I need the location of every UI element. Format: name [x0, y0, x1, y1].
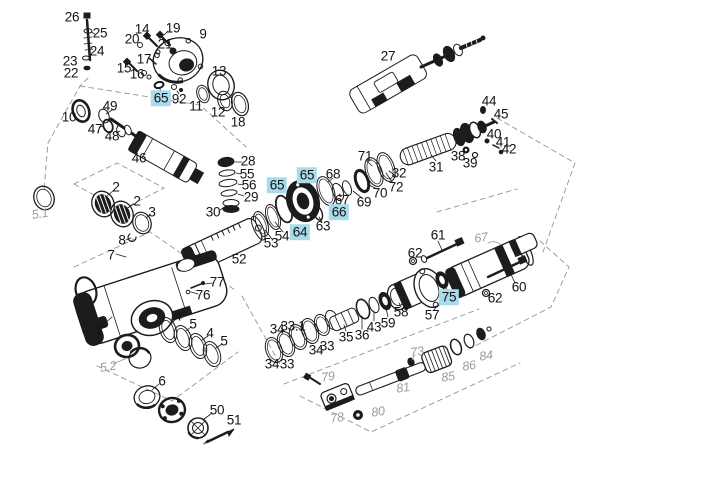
part-label-92[interactable]: 92: [171, 92, 187, 106]
part-label-21[interactable]: 21: [157, 37, 173, 51]
part-label-12[interactable]: 12: [210, 105, 226, 119]
part-label-18[interactable]: 18: [230, 115, 246, 129]
part-label-76[interactable]: 76: [195, 288, 211, 302]
part-label-59[interactable]: 59: [380, 316, 396, 330]
part-label-86: 86: [460, 359, 477, 374]
part-label-5[interactable]: 5: [219, 334, 228, 348]
part-label-34[interactable]: 34: [264, 357, 280, 371]
part-label-6[interactable]: 6: [157, 374, 166, 388]
part-label-24[interactable]: 24: [89, 44, 105, 58]
part-label-78: 78: [328, 411, 345, 426]
part-label-53[interactable]: 53: [263, 236, 279, 250]
part-label-2[interactable]: 2: [111, 180, 120, 194]
part-label-17[interactable]: 17: [136, 52, 152, 66]
part-label-4[interactable]: 4: [173, 309, 182, 323]
part-label-73: 73: [408, 345, 425, 360]
part-label-70[interactable]: 70: [372, 186, 388, 200]
part-label-69[interactable]: 69: [356, 195, 372, 209]
part-label-16[interactable]: 16: [129, 67, 145, 81]
part-label-62[interactable]: 62: [407, 246, 423, 260]
part-label-47[interactable]: 47: [87, 122, 103, 136]
part-label-1[interactable]: 1: [94, 322, 103, 336]
part-label-4[interactable]: 4: [205, 326, 214, 340]
part-label-25[interactable]: 25: [92, 26, 108, 40]
part-label-29[interactable]: 29: [243, 190, 259, 204]
part-label-9[interactable]: 9: [198, 27, 207, 41]
part-label-52[interactable]: 52: [231, 252, 247, 266]
part-label-11[interactable]: 11: [188, 99, 203, 113]
part-label-33.1[interactable]: 33.1: [279, 319, 306, 333]
part-label-60[interactable]: 60: [511, 280, 527, 294]
part-label-13[interactable]: 13: [211, 64, 227, 78]
part-label-7[interactable]: 7: [106, 248, 115, 262]
part-label-50[interactable]: 50: [209, 403, 225, 417]
part-label-79: 79: [319, 370, 336, 385]
part-label-81: 81: [394, 381, 411, 396]
part-label-36[interactable]: 36: [354, 328, 370, 342]
part-label-19[interactable]: 19: [165, 21, 181, 35]
part-label-80: 80: [369, 405, 386, 420]
part-label-72[interactable]: 72: [388, 180, 404, 194]
part-label-33[interactable]: 33: [279, 357, 295, 371]
part-label-61[interactable]: 61: [430, 228, 446, 242]
part-label-5.1: 5.1: [30, 206, 50, 221]
part-label-10[interactable]: 10: [61, 110, 77, 124]
part-label-57[interactable]: 57: [424, 308, 440, 322]
part-label-30[interactable]: 30: [205, 205, 221, 219]
part-label-31[interactable]: 31: [428, 160, 444, 174]
part-label-39[interactable]: 39: [462, 156, 478, 170]
part-label-64[interactable]: 64: [290, 224, 310, 240]
part-label-3[interactable]: 3: [147, 205, 156, 219]
part-label-71[interactable]: 71: [357, 149, 373, 163]
exploded-parts-diagram: 2625242322142019219171516136592111218104…: [0, 0, 720, 501]
part-label-65[interactable]: 65: [151, 90, 171, 106]
part-label-63[interactable]: 63: [315, 219, 331, 233]
part-label-49[interactable]: 49: [102, 99, 118, 113]
part-label-27[interactable]: 27: [380, 49, 396, 63]
part-label-8[interactable]: 8: [117, 233, 126, 247]
part-label-34[interactable]: 34: [308, 343, 324, 357]
part-label-46[interactable]: 46: [131, 151, 147, 165]
part-labels-layer: 2625242322142019219171516136592111218104…: [0, 0, 720, 501]
part-label-77[interactable]: 77: [209, 275, 225, 289]
part-label-68[interactable]: 68: [325, 167, 341, 181]
part-label-5.2: 5.2: [98, 359, 118, 374]
part-label-5[interactable]: 5: [188, 317, 197, 331]
part-label-65[interactable]: 65: [297, 167, 317, 183]
part-label-51[interactable]: 51: [226, 413, 242, 427]
part-label-84: 84: [477, 349, 494, 364]
part-label-65[interactable]: 65: [267, 177, 287, 193]
part-label-32[interactable]: 32: [391, 166, 407, 180]
part-label-42[interactable]: 42: [501, 142, 517, 156]
part-label-62[interactable]: 62: [487, 291, 503, 305]
part-label-85: 85: [439, 370, 456, 385]
part-label-26[interactable]: 26: [64, 10, 80, 24]
part-label-67: 67: [472, 231, 489, 246]
part-label-35[interactable]: 35: [338, 330, 354, 344]
part-label-2[interactable]: 2: [132, 194, 141, 208]
part-label-22[interactable]: 22: [63, 66, 79, 80]
part-label-66[interactable]: 66: [329, 204, 349, 220]
part-label-48[interactable]: 48: [104, 129, 120, 143]
part-label-20[interactable]: 20: [124, 32, 140, 46]
part-label-45[interactable]: 45: [493, 107, 509, 121]
part-label-75[interactable]: 75: [439, 289, 459, 305]
